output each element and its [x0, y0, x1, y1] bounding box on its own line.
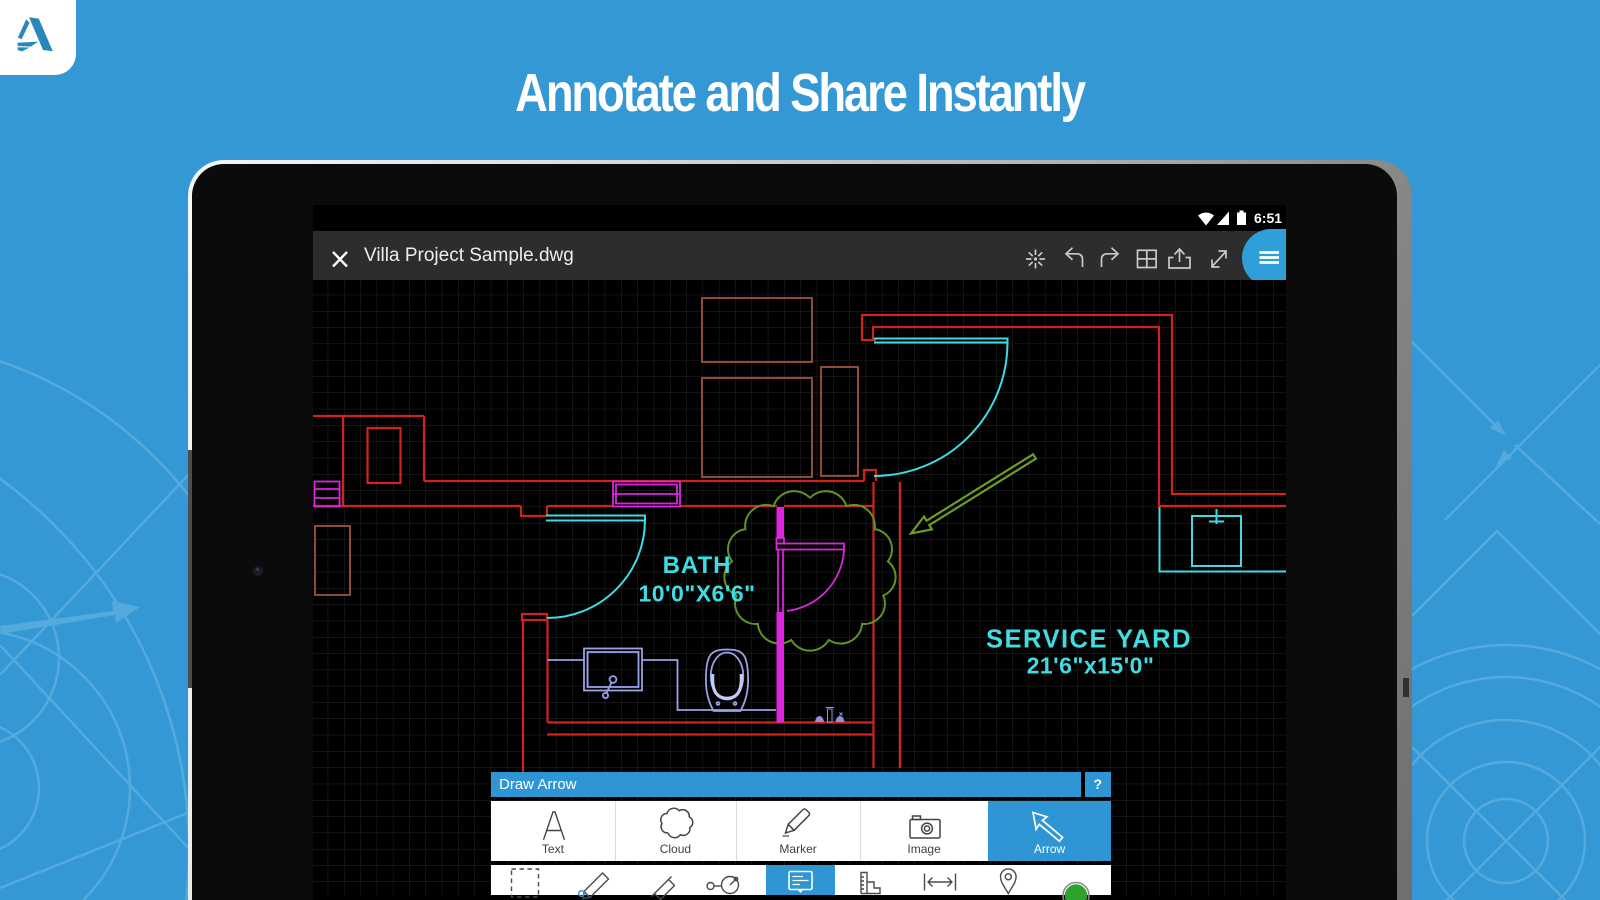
svg-text:BATH: BATH [663, 552, 732, 579]
svg-text:10'0"X6'6": 10'0"X6'6" [638, 581, 755, 607]
svg-text:21'6"x15'0": 21'6"x15'0" [1027, 653, 1155, 679]
svg-text:SERVICE YARD: SERVICE YARD [986, 626, 1192, 654]
